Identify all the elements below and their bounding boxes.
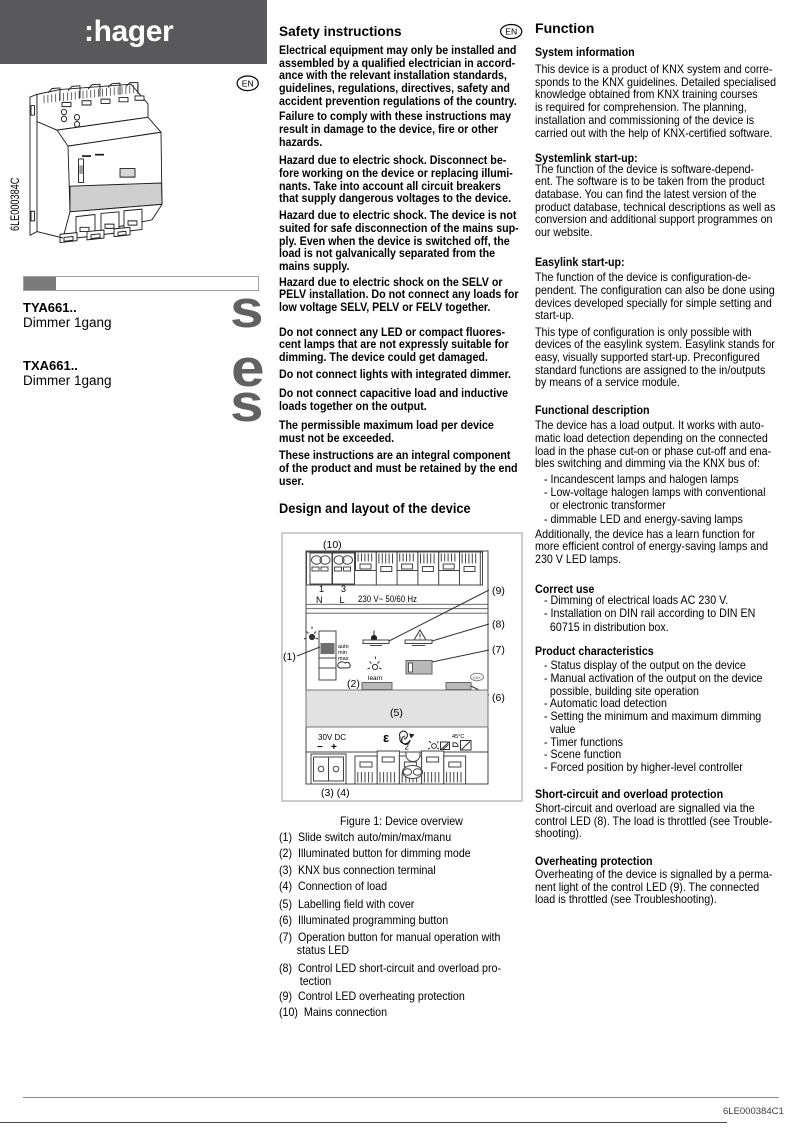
svg-text:(7): (7)	[492, 644, 505, 656]
svg-text:N: N	[316, 595, 323, 605]
svg-text:(8): (8)	[492, 619, 505, 631]
svg-text:(2): (2)	[347, 678, 360, 690]
svg-text:−: −	[317, 742, 323, 753]
svg-text:3: 3	[341, 584, 346, 594]
svg-text:max: max	[338, 656, 349, 662]
svg-text:230 V~ 50/60 Hz: 230 V~ 50/60 Hz	[358, 594, 417, 604]
svg-text:EN: EN	[505, 27, 517, 37]
svg-text:30V DC: 30V DC	[318, 733, 346, 742]
svg-text:KNX: KNX	[473, 676, 481, 680]
svg-text:(1): (1)	[283, 651, 296, 663]
svg-text:(3) (4): (3) (4)	[321, 787, 350, 799]
svg-text:(5): (5)	[390, 707, 403, 719]
svg-text:45°C: 45°C	[452, 734, 464, 740]
svg-text:1: 1	[319, 584, 324, 594]
svg-text:+: +	[331, 742, 337, 753]
svg-text:(6): (6)	[492, 692, 505, 704]
svg-text:learn: learn	[368, 675, 383, 682]
svg-text:L: L	[340, 595, 345, 605]
svg-text:EN: EN	[242, 79, 254, 89]
svg-text:ε: ε	[383, 730, 389, 745]
svg-text:(9): (9)	[492, 585, 505, 597]
svg-text:(10): (10)	[323, 539, 342, 551]
svg-text:2: 2	[405, 743, 410, 752]
